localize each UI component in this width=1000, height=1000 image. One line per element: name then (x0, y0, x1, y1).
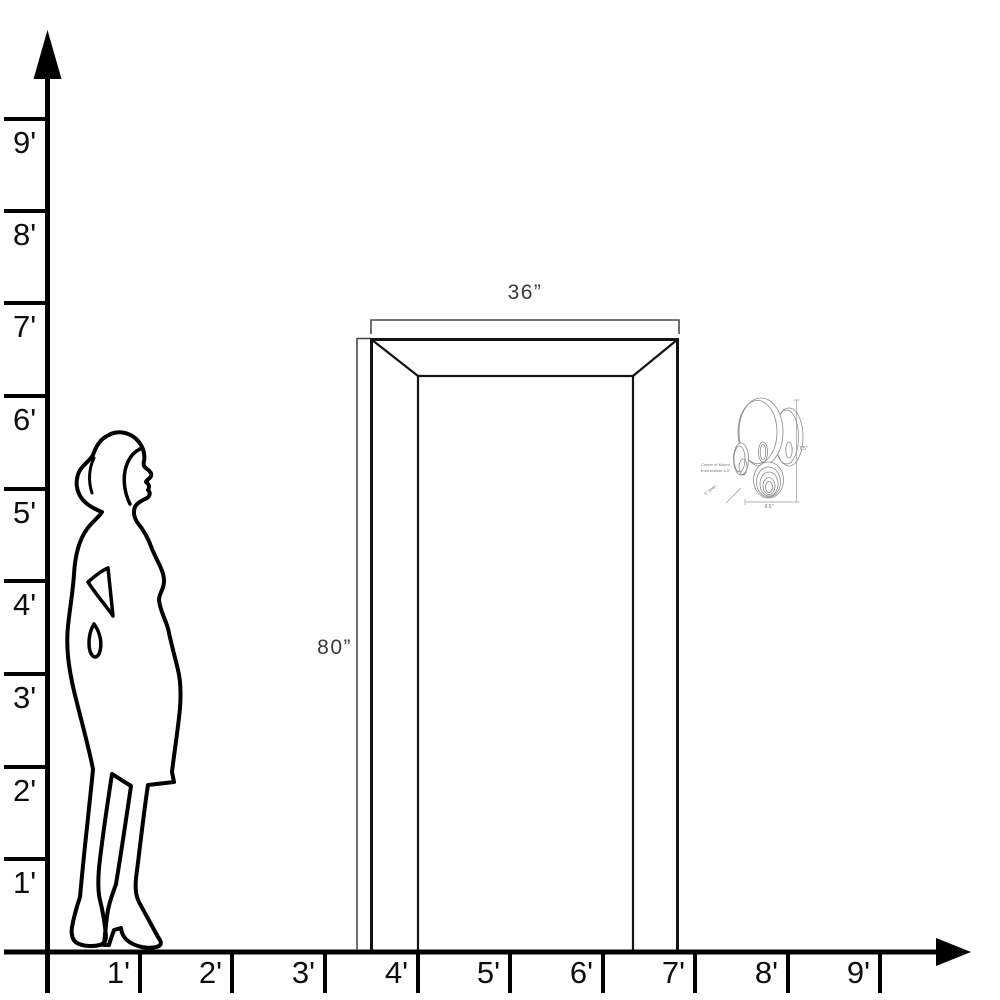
x-axis-label-6ft: 6' (543, 957, 593, 988)
y-axis-label-2ft: 2' (13, 775, 36, 806)
sconce-height-label: 7.5" (799, 446, 808, 453)
door-height-label: 80” (280, 637, 352, 658)
y-axis-label-3ft: 3' (13, 682, 36, 713)
y-axis-label-6ft: 6' (13, 404, 36, 435)
diagram-linework (0, 0, 1000, 1000)
sconce-width-label: 8.5" (753, 504, 785, 511)
size-comparison-diagram: 9' 8' 7' 6' 5' 4' 3' 2' 1' 1' 2' 3' 4' 5… (0, 0, 1000, 1000)
y-axis-label-5ft: 5' (13, 497, 36, 528)
x-axis-label-9ft: 9' (820, 957, 870, 988)
x-axis-label-7ft: 7' (635, 957, 685, 988)
y-axis-arrow-icon (34, 30, 62, 79)
x-axis-label-1ft: 1' (80, 957, 130, 988)
x-axis-arrow-icon (936, 938, 971, 966)
door-miter-right (633, 340, 678, 377)
woman-silhouette (67, 432, 180, 947)
sconce-slot-rear (786, 442, 792, 458)
sconce-ring-5 (766, 482, 773, 493)
y-axis-label-8ft: 8' (13, 219, 36, 250)
x-axis-label-5ft: 5' (450, 957, 500, 988)
door-width-dimension-bracket (371, 320, 679, 334)
door-miter-left (372, 340, 419, 377)
door-drawing (357, 320, 679, 950)
x-axis-label-3ft: 3' (265, 957, 315, 988)
sconce-mount-note: Center of Mount from bottom 6.5" (701, 462, 741, 473)
y-axis-label-4ft: 4' (13, 589, 36, 620)
sconce-drawing (726, 398, 803, 505)
x-axis-label-4ft: 4' (358, 957, 408, 988)
x-axis-label-2ft: 2' (172, 957, 222, 988)
woman-outline (67, 432, 180, 947)
door-inner-frame (418, 376, 633, 950)
y-axis-label-1ft: 1' (13, 867, 36, 898)
y-axis-label-7ft: 7' (13, 311, 36, 342)
x-axis-label-8ft: 8' (728, 957, 778, 988)
door-width-label: 36” (465, 282, 585, 303)
sconce-mount-note-line2: from bottom 6.5" (701, 468, 741, 474)
y-axis-label-9ft: 9' (13, 127, 36, 158)
